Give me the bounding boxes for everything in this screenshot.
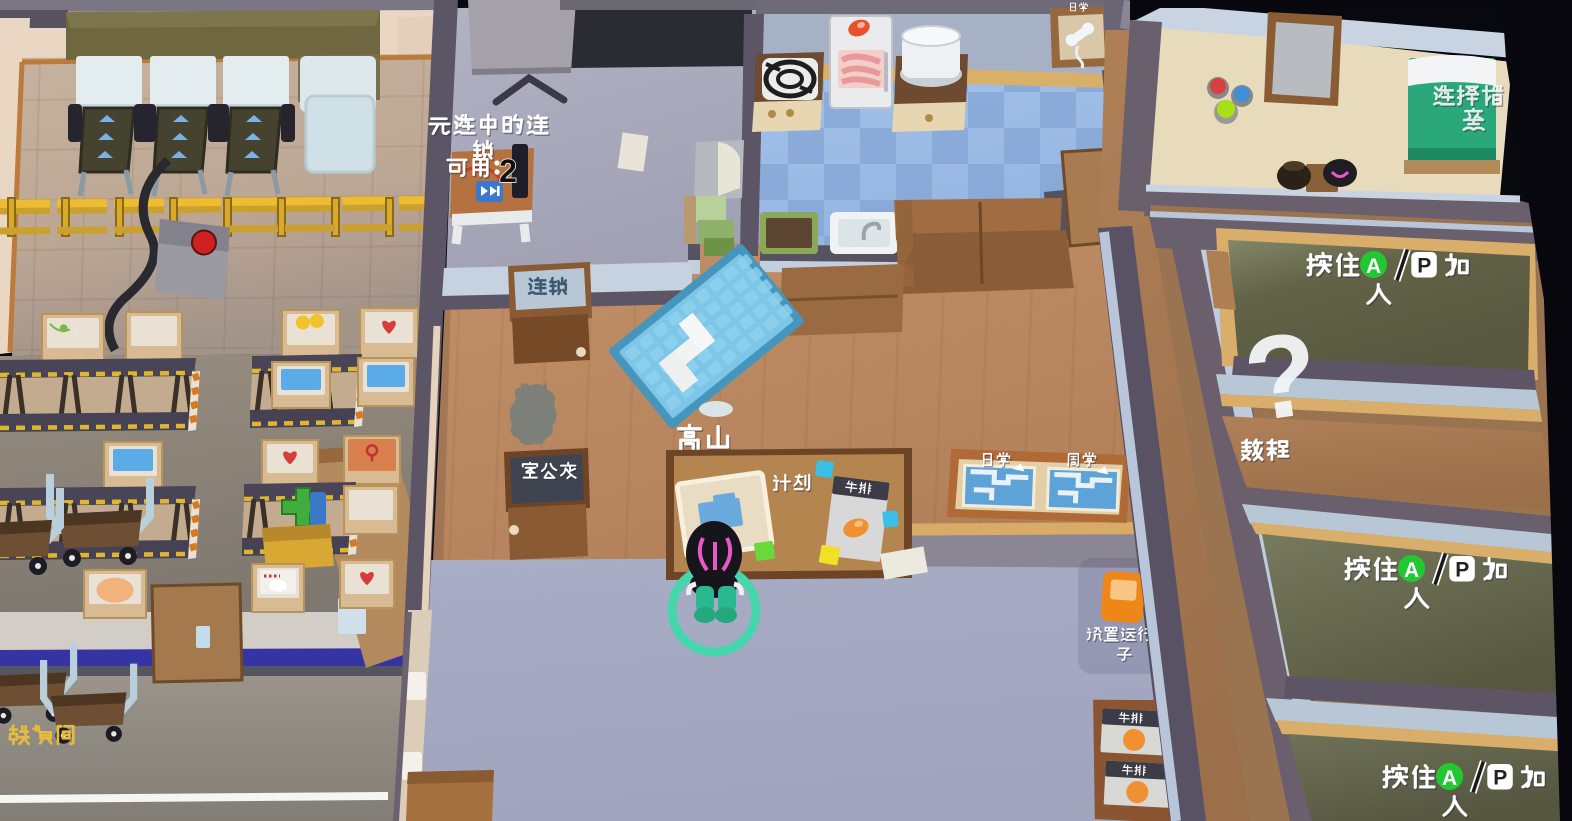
- svg-text:P: P: [1493, 766, 1507, 789]
- svg-text:A: A: [1366, 255, 1381, 278]
- svg-text:P: P: [1417, 254, 1431, 277]
- svg-text:A: A: [1442, 767, 1457, 790]
- svg-text:A: A: [1404, 559, 1419, 582]
- svg-text:P: P: [1455, 558, 1469, 581]
- svg-text:2: 2: [499, 153, 517, 189]
